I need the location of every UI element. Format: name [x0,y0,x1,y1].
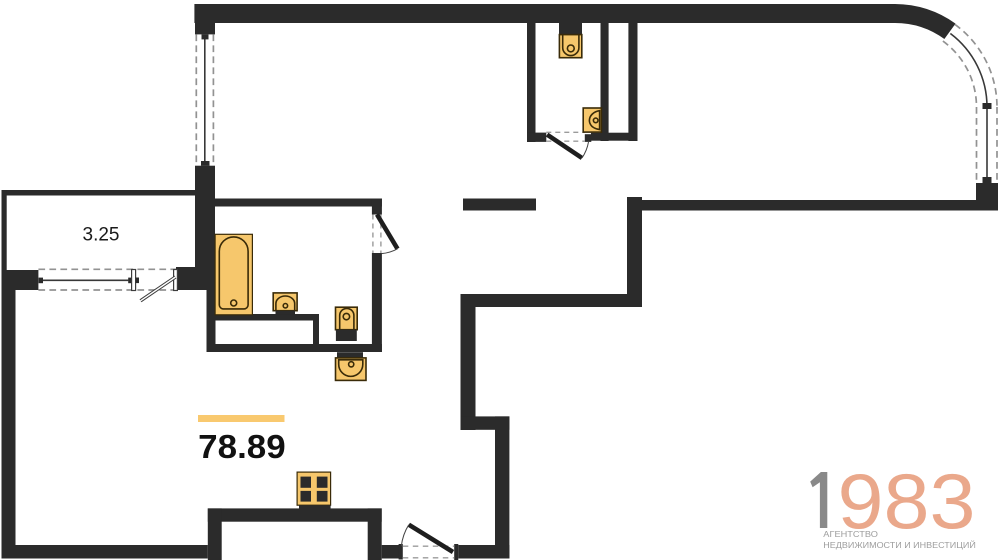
svg-text:3.25: 3.25 [83,225,120,246]
svg-text:78.89: 78.89 [198,429,286,466]
svg-text:НЕДВИЖИМОСТИ И ИНВЕСТИЦИЙ: НЕДВИЖИМОСТИ И ИНВЕСТИЦИЙ [823,539,976,550]
svg-text:АГЕНТСТВО: АГЕНТСТВО [823,530,878,539]
